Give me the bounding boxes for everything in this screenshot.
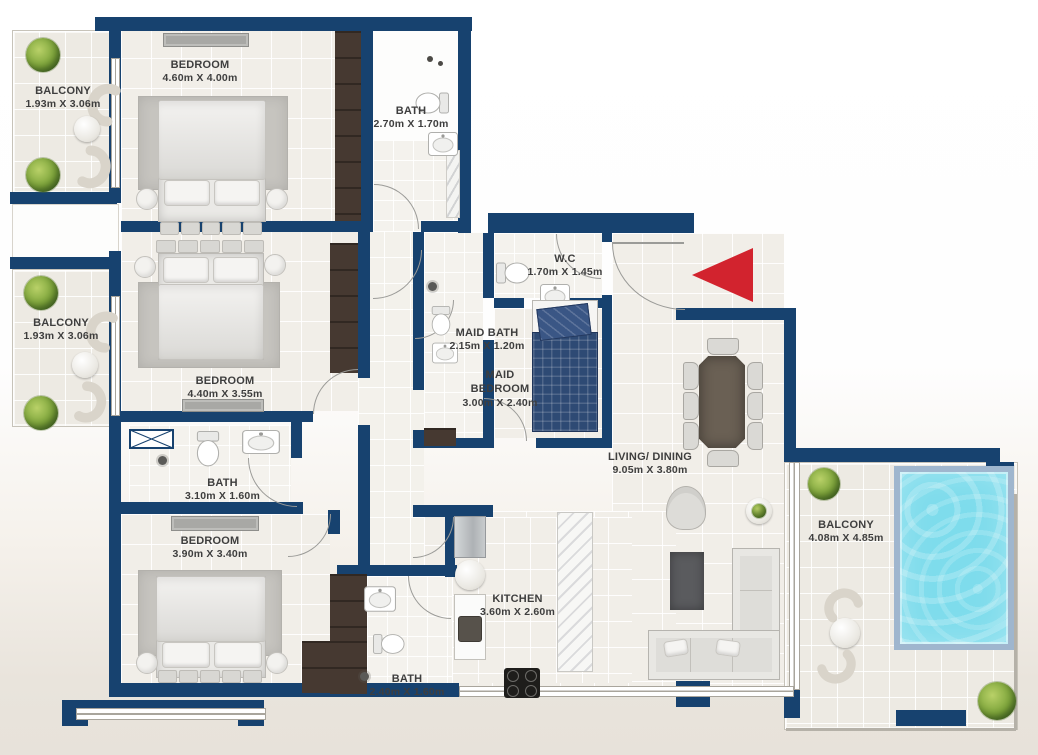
bed-pillow [164, 180, 210, 206]
nightstand [266, 188, 288, 210]
door-leaf [612, 242, 684, 244]
room-dims: 1.93m X 3.06m [8, 330, 114, 344]
kitchen-round-table [455, 560, 485, 590]
tv-console [171, 516, 259, 531]
bed-headboard [156, 240, 264, 253]
toilet-icon [373, 630, 405, 658]
room-dims: 3.60m X 2.60m [455, 606, 580, 620]
room-dims: 3.00m X 2.40m [460, 397, 540, 411]
nightstand [264, 254, 286, 276]
wall [602, 295, 612, 448]
wall [121, 411, 313, 422]
room-label-maid-bedroom: MAID BEDROOM 3.00m X 2.40m [460, 368, 540, 410]
bed-pillow [214, 642, 262, 668]
room-name: MAID BEDROOM [460, 368, 540, 397]
room-dims: 1.93m X 3.06m [10, 98, 116, 112]
wall [536, 438, 602, 448]
cooktop-icon [504, 668, 540, 698]
bed-bench [160, 222, 262, 235]
sofa-pillow [715, 638, 741, 657]
wall [676, 308, 796, 320]
dining-chair [707, 338, 739, 355]
floor-connector [12, 204, 119, 259]
room-dims: 4.08m X 4.85m [790, 532, 902, 546]
entry-arrow-icon [692, 248, 753, 302]
wall [62, 700, 264, 708]
room-dims: 1.70m X 1.45m [515, 266, 615, 280]
wall [291, 422, 302, 458]
room-label-balcony-2: BALCONY 1.93m X 3.06m [8, 316, 114, 344]
plant-icon [24, 276, 58, 310]
room-name: LIVING/ DINING [580, 450, 720, 464]
pool [894, 466, 1014, 650]
dining-chair [683, 362, 699, 390]
room-name: BALCONY [790, 518, 902, 532]
railing [786, 728, 1016, 731]
wall [488, 213, 694, 233]
bed-duvet [158, 284, 264, 360]
room-name: W.C [515, 252, 615, 266]
tv-console [163, 33, 249, 47]
nightstand [134, 256, 156, 278]
wardrobe [424, 428, 456, 446]
room-label-balcony-1: BALCONY 1.93m X 3.06m [10, 84, 116, 112]
plant-icon [24, 396, 58, 430]
room-label-bath-1: BATH 2.70m X 1.70m [365, 104, 457, 132]
armchair [666, 486, 706, 530]
maid-bed-pillow [536, 303, 592, 341]
window [789, 462, 800, 690]
shower-icon [158, 456, 167, 465]
toilet-icon [194, 431, 222, 467]
wall [602, 226, 612, 242]
bed-duvet [156, 576, 266, 642]
shower-panel [446, 150, 460, 218]
wardrobe [330, 243, 358, 373]
nightstand [266, 652, 288, 674]
room-name: BALCONY [8, 316, 114, 330]
floor-plan: BALCONY 1.93m X 3.06m BEDROOM 4.60m X 4.… [0, 0, 1038, 755]
room-label-living-dining: LIVING/ DINING 9.05m X 3.80m [580, 450, 720, 478]
room-name: BALCONY [10, 84, 116, 98]
room-name: MAID BATH [438, 326, 536, 340]
room-label-wc: W.C 1.70m X 1.45m [515, 252, 615, 280]
sink-icon [242, 430, 280, 454]
wall [483, 233, 494, 298]
wall [10, 257, 117, 269]
maid-bed-blanket [532, 332, 598, 432]
dining-chair [683, 422, 699, 450]
room-label-bedroom-2: BEDROOM 4.40m X 3.55m [155, 374, 295, 402]
room-dims: 2.70m X 1.70m [365, 118, 457, 132]
room-name: KITCHEN [455, 592, 580, 606]
dining-chair [747, 422, 763, 450]
room-name: BEDROOM [155, 374, 295, 388]
room-label-bath-2: BATH 3.10m X 1.60m [165, 476, 280, 504]
wall [784, 448, 1000, 462]
wardrobe [335, 31, 361, 221]
fridge-icon [454, 516, 486, 558]
bed-pillow [214, 180, 260, 206]
wall [421, 221, 471, 232]
room-label-bedroom-1: BEDROOM 4.60m X 4.00m [130, 58, 270, 86]
dining-chair [747, 392, 763, 420]
wall [358, 232, 370, 378]
room-name: BATH [352, 672, 462, 686]
sink-icon [428, 132, 458, 156]
plant-icon [26, 158, 60, 192]
plant-icon [752, 504, 766, 518]
coffee-table [670, 552, 704, 610]
room-dims: 3.90m X 3.40m [140, 548, 280, 562]
room-name: BEDROOM [130, 58, 270, 72]
plant-icon [26, 38, 60, 72]
room-label-bedroom-3: BEDROOM 3.90m X 3.40m [140, 534, 280, 562]
room-label-balcony-3: BALCONY 4.08m X 4.85m [790, 518, 902, 546]
wall [494, 298, 524, 308]
nightstand [136, 188, 158, 210]
room-dims: 9.05m X 3.80m [580, 464, 720, 478]
room-name: BATH [365, 104, 457, 118]
dining-chair [683, 392, 699, 420]
plant-icon [978, 682, 1016, 720]
room-dims: 2.15m X 1.20m [438, 340, 536, 354]
balcony-table [74, 116, 100, 142]
room-dims: 3.10m X 1.60m [165, 490, 280, 504]
room-dims: 4.40m X 3.55m [155, 388, 295, 402]
wall [896, 710, 966, 726]
plant-icon [808, 468, 840, 500]
bed-bench [158, 670, 262, 683]
room-label-maid-bath: MAID BATH 2.15m X 1.20m [438, 326, 536, 354]
bed-pillow [213, 257, 259, 283]
room-dims: 2.40m X 1.60m [352, 686, 462, 700]
bed-duvet [158, 100, 266, 180]
door-knob [427, 56, 433, 62]
shower-tray-icon [129, 429, 174, 449]
nightstand [136, 652, 158, 674]
wall [95, 17, 472, 31]
room-label-kitchen: KITCHEN 3.60m X 2.60m [455, 592, 580, 620]
balcony-table [72, 352, 98, 378]
wall [784, 320, 796, 462]
window [76, 708, 266, 720]
wall [358, 425, 370, 576]
bed-pillow [163, 257, 209, 283]
wall [109, 425, 121, 697]
dining-chair [747, 362, 763, 390]
room-name: BEDROOM [140, 534, 280, 548]
room-label-bath-3: BATH 2.40m X 1.60m [352, 672, 462, 700]
door-knob [438, 61, 443, 66]
sink-icon [364, 586, 396, 612]
bed-pillow [162, 642, 210, 668]
dining-table [699, 356, 745, 448]
room-dims: 4.60m X 4.00m [130, 72, 270, 86]
room-name: BATH [165, 476, 280, 490]
shower-icon [428, 282, 437, 291]
